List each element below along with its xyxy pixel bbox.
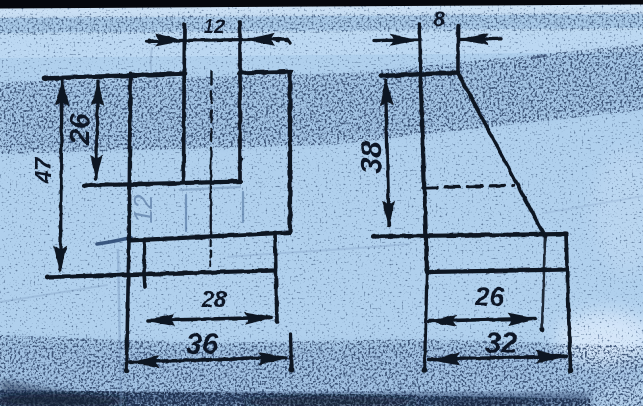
svg-text:28: 28 — [200, 286, 227, 312]
svg-text:36: 36 — [186, 329, 219, 361]
svg-text:8: 8 — [433, 8, 445, 31]
svg-text:47: 47 — [30, 157, 56, 185]
svg-text:32: 32 — [485, 328, 517, 360]
svg-text:38: 38 — [356, 141, 388, 174]
svg-text:26: 26 — [64, 113, 95, 146]
svg-text:12: 12 — [203, 17, 225, 38]
svg-text:12: 12 — [128, 194, 158, 223]
svg-text:26: 26 — [474, 282, 504, 312]
